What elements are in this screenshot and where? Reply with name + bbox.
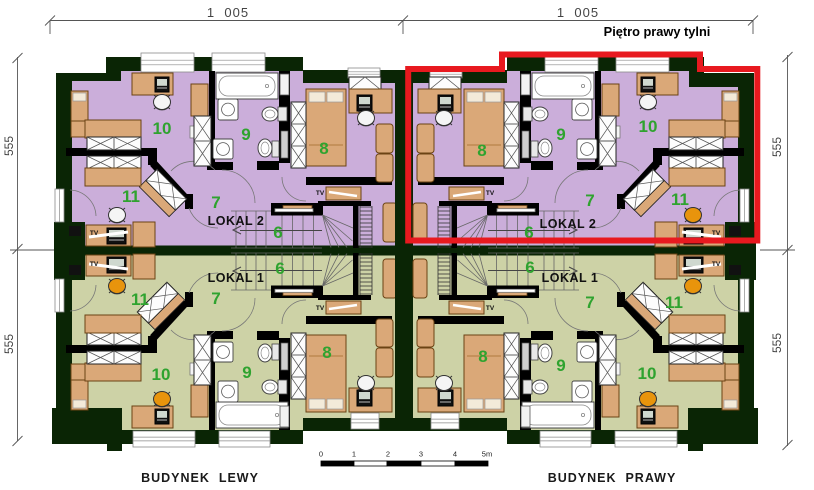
svg-text:6: 6 xyxy=(525,258,534,277)
svg-text:11: 11 xyxy=(131,290,149,309)
svg-text:11: 11 xyxy=(671,190,689,209)
svg-text:7: 7 xyxy=(211,193,220,212)
svg-text:9: 9 xyxy=(556,125,565,144)
svg-text:TV: TV xyxy=(486,190,495,197)
svg-text:0: 0 xyxy=(319,450,323,459)
svg-text:6: 6 xyxy=(273,223,282,242)
svg-text:TV: TV xyxy=(486,305,495,312)
svg-text:9: 9 xyxy=(241,125,250,144)
svg-text:LOKAL 2: LOKAL 2 xyxy=(540,217,597,231)
svg-text:9: 9 xyxy=(242,363,251,382)
svg-text:TV: TV xyxy=(712,261,721,268)
svg-text:7: 7 xyxy=(585,293,594,312)
svg-text:9: 9 xyxy=(556,356,565,375)
svg-text:3: 3 xyxy=(419,450,423,459)
svg-text:TV: TV xyxy=(90,230,99,237)
svg-text:LOKAL 2: LOKAL 2 xyxy=(208,214,265,228)
svg-text:1 005: 1 005 xyxy=(557,5,599,20)
svg-text:TV: TV xyxy=(90,261,99,268)
svg-text:555: 555 xyxy=(770,333,784,353)
svg-text:555: 555 xyxy=(2,334,16,354)
svg-text:11: 11 xyxy=(665,293,683,312)
svg-text:10: 10 xyxy=(639,117,658,136)
svg-text:BUDYNEK LEWY: BUDYNEK LEWY xyxy=(141,471,259,485)
svg-text:LOKAL 1: LOKAL 1 xyxy=(208,271,265,285)
svg-text:8: 8 xyxy=(477,141,486,160)
svg-text:BUDYNEK PRAWY: BUDYNEK PRAWY xyxy=(548,471,677,485)
svg-text:2: 2 xyxy=(386,450,390,459)
svg-text:10: 10 xyxy=(638,364,657,383)
svg-text:555: 555 xyxy=(2,136,16,156)
svg-text:Piętro prawy tylni: Piętro prawy tylni xyxy=(604,24,711,39)
svg-text:8: 8 xyxy=(478,347,487,366)
svg-text:11: 11 xyxy=(122,187,140,206)
svg-text:4: 4 xyxy=(453,450,457,459)
svg-text:8: 8 xyxy=(319,139,328,158)
svg-text:LOKAL 1: LOKAL 1 xyxy=(542,271,599,285)
svg-text:555: 555 xyxy=(770,137,784,157)
svg-text:10: 10 xyxy=(153,119,172,138)
svg-text:7: 7 xyxy=(585,191,594,210)
svg-text:10: 10 xyxy=(152,365,171,384)
svg-text:8: 8 xyxy=(322,343,331,362)
svg-text:TV: TV xyxy=(712,230,721,237)
svg-text:7: 7 xyxy=(211,289,220,308)
svg-text:TV: TV xyxy=(316,190,325,197)
svg-text:6: 6 xyxy=(275,259,284,278)
svg-text:1: 1 xyxy=(352,450,356,459)
svg-text:TV: TV xyxy=(316,305,325,312)
svg-text:5m: 5m xyxy=(482,450,492,459)
svg-text:1 005: 1 005 xyxy=(207,5,249,20)
